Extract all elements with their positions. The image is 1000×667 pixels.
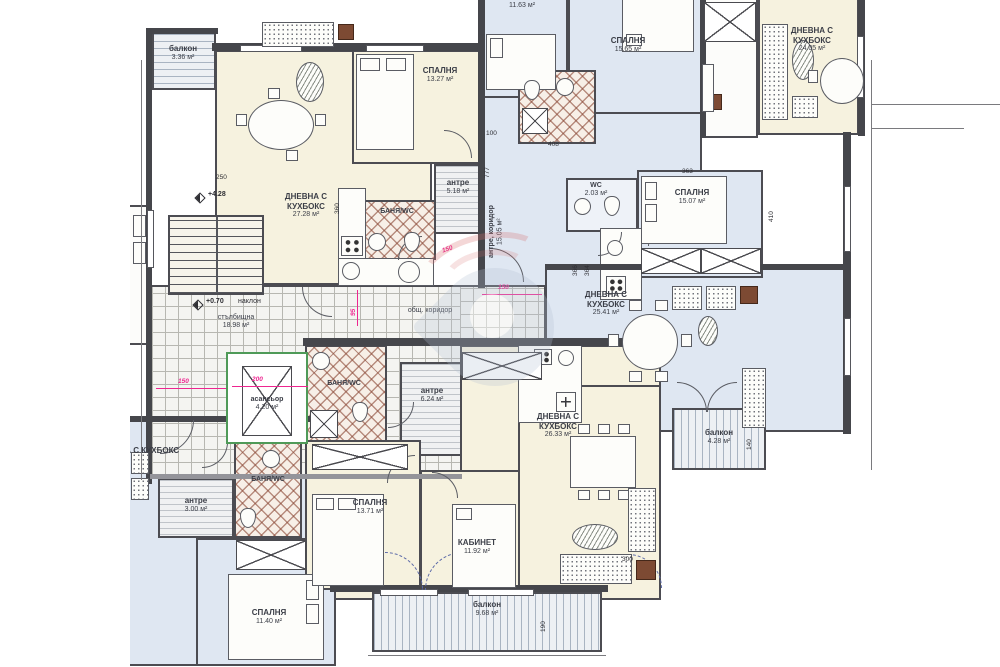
dining-table-round bbox=[622, 314, 678, 370]
room-area: 11.40 м² bbox=[234, 618, 304, 626]
room-area: 25.41 м² bbox=[566, 309, 646, 317]
dim-line bbox=[871, 60, 872, 470]
bed-pillow bbox=[360, 58, 380, 71]
dim-label: 250 bbox=[216, 174, 227, 181]
room-area: 4.28 м² bbox=[686, 438, 752, 446]
dim-label: 100 bbox=[486, 130, 497, 137]
chair bbox=[629, 371, 642, 382]
bed-pillow bbox=[645, 204, 657, 222]
chair bbox=[315, 114, 326, 126]
bed-pillow bbox=[645, 182, 657, 200]
room-name: БАНЯ/WC bbox=[362, 208, 432, 216]
window bbox=[380, 589, 438, 596]
room-name: ДНЕВНА С КУХБОКС bbox=[130, 446, 180, 456]
bed-pillow bbox=[456, 508, 472, 520]
room-label-living-26-33: ДНЕВНА С КУХБОКС 26.33 м² bbox=[518, 412, 598, 440]
wardrobe bbox=[236, 540, 306, 570]
room-name: БАНЯ/WC bbox=[234, 476, 302, 484]
room-name: БАНЯ/WC bbox=[306, 380, 382, 388]
window bbox=[844, 186, 851, 252]
wardrobe bbox=[641, 248, 701, 274]
room-label-living-d: ДНЕВНА С КУХБОКС bbox=[130, 446, 180, 456]
level-value: +4.28 bbox=[208, 191, 226, 198]
dim-line-pink bbox=[482, 294, 542, 295]
dim-line bbox=[872, 128, 964, 129]
washbasin bbox=[574, 198, 591, 215]
room-label-stairwell: стълбищна 18.98 м² bbox=[200, 314, 272, 331]
room-name: антре, коридор bbox=[488, 192, 496, 272]
dim-line bbox=[368, 655, 606, 656]
room-name: СПАЛНЯ bbox=[596, 36, 660, 46]
wall bbox=[150, 28, 218, 34]
stove-fireplace-box bbox=[740, 286, 758, 304]
room-name: антре bbox=[406, 386, 458, 396]
washbasin bbox=[556, 78, 574, 96]
level-value: +0.70 bbox=[206, 298, 224, 305]
washbasin bbox=[312, 352, 330, 370]
room-label-bath-d: БАНЯ/WC bbox=[234, 476, 302, 484]
room-area: 11.92 м² bbox=[442, 548, 512, 556]
window bbox=[844, 318, 851, 376]
stair-divider bbox=[216, 217, 218, 293]
room-area: 3.00 м² bbox=[166, 506, 226, 514]
room-name: балкон bbox=[452, 600, 522, 610]
room-area: 11.63 м² bbox=[490, 2, 554, 10]
dim-label-pink: 95 bbox=[350, 309, 357, 316]
room-label-antre-d: антре 3.00 м² bbox=[166, 496, 226, 514]
room-name: СПАЛНЯ bbox=[660, 188, 724, 198]
kitchen-sink bbox=[398, 261, 420, 283]
slope-note: наклон bbox=[238, 298, 261, 305]
dim-label: 366 bbox=[572, 265, 579, 276]
room-name: антре bbox=[436, 178, 480, 188]
dim-label: 410 bbox=[768, 211, 775, 222]
room-label-antre-e: антре 6.24 м² bbox=[406, 386, 458, 404]
dim-label-pink: 150 bbox=[498, 284, 509, 291]
room-label-elevator: асансьор 4.20 м² bbox=[232, 396, 302, 413]
room-label-living-c: ДНЕВНА С КУХБОКС 24.05 м² bbox=[774, 26, 850, 54]
room-name: ДНЕВНА С КУХБОКС bbox=[774, 26, 850, 45]
dim-label: 190 bbox=[540, 621, 547, 632]
room-area: 4.20 м² bbox=[232, 404, 302, 412]
bed-pillow bbox=[316, 498, 334, 510]
room-name: WC bbox=[578, 182, 614, 190]
plant bbox=[698, 316, 718, 346]
room-area: 9.68 м² bbox=[452, 610, 522, 618]
room-label-bedroom-13-71: СПАЛНЯ 13.71 м² bbox=[338, 498, 402, 516]
room-label-bedroom-11-40: СПАЛНЯ 11.40 м² bbox=[234, 608, 304, 626]
room-label-bedroom-a: СПАЛНЯ 13.27 м² bbox=[408, 66, 472, 84]
dim-label: 300 bbox=[622, 556, 633, 563]
shower-tray bbox=[522, 108, 548, 134]
room-name: ДНЕВНА С КУХБОКС bbox=[518, 412, 598, 431]
room-name: общ. коридор bbox=[394, 307, 466, 315]
dim-line-pink bbox=[357, 290, 358, 326]
sofa bbox=[262, 22, 334, 47]
armchair bbox=[706, 286, 736, 310]
chair bbox=[598, 424, 610, 434]
room-name: антре bbox=[166, 496, 226, 506]
chair bbox=[236, 114, 247, 126]
room-area: 15.07 м² bbox=[660, 198, 724, 206]
sofa bbox=[628, 488, 656, 552]
dim-line bbox=[872, 104, 1000, 105]
stove-fireplace-box bbox=[636, 560, 656, 580]
dim-label: 360 bbox=[334, 203, 341, 214]
armchair bbox=[792, 96, 818, 118]
wall bbox=[843, 132, 851, 434]
room-area: 3.36 м² bbox=[150, 54, 216, 62]
chair bbox=[268, 88, 280, 99]
room-area: 26.33 м² bbox=[518, 431, 598, 439]
room-label-bath-e: БАНЯ/WC bbox=[306, 380, 382, 388]
dim-label: 777 bbox=[484, 167, 491, 178]
kitchen-sink bbox=[558, 350, 574, 366]
dim-label-pink: 150 bbox=[441, 244, 453, 254]
wardrobe bbox=[704, 2, 756, 42]
radiator bbox=[702, 64, 714, 112]
washbasin bbox=[262, 450, 280, 468]
fixture-cut bbox=[133, 242, 146, 264]
room-label-kabinet: КАБИНЕТ 11.92 м² bbox=[442, 538, 512, 556]
room-name: СПАЛНЯ bbox=[234, 608, 304, 618]
window bbox=[366, 45, 424, 52]
room-name: балкон bbox=[150, 44, 216, 54]
dining-table bbox=[248, 100, 314, 150]
room-label-balcony-4-28: балкон 4.28 м² bbox=[686, 428, 752, 446]
room-area: 15.05 м² bbox=[496, 192, 504, 272]
wardrobe bbox=[312, 444, 408, 470]
room-label-wc: WC 2.03 м² bbox=[578, 182, 614, 199]
armchair bbox=[672, 286, 702, 310]
sofa bbox=[742, 368, 766, 428]
kitchen-sink bbox=[342, 262, 360, 280]
room-area: 13.27 м² bbox=[408, 76, 472, 84]
chair bbox=[681, 334, 692, 347]
window bbox=[147, 210, 154, 268]
dining-table-round bbox=[820, 58, 864, 104]
fridge bbox=[556, 392, 576, 412]
chair bbox=[808, 70, 818, 83]
room-label-living-d-clip: ДНЕВНА С КУХБОКС bbox=[130, 446, 182, 486]
bed-pillow bbox=[306, 604, 319, 624]
dim-label: 140 bbox=[746, 439, 753, 450]
dim-label-pink: 150 bbox=[178, 378, 189, 385]
bed-pillow bbox=[490, 38, 503, 58]
room-name: балкон bbox=[686, 428, 752, 438]
room-name: СПАЛНЯ bbox=[338, 498, 402, 508]
wardrobe bbox=[462, 352, 542, 380]
dim-label: 364 bbox=[584, 265, 591, 276]
chair bbox=[286, 150, 298, 161]
window bbox=[468, 589, 534, 596]
antre-5-18-room bbox=[434, 164, 482, 234]
dim-line-pink bbox=[156, 388, 226, 389]
fixture-cut bbox=[133, 215, 146, 237]
cooktop bbox=[341, 236, 363, 256]
room-name: стълбищна bbox=[200, 314, 272, 322]
chair bbox=[598, 490, 610, 500]
room-label-common-corridor: общ. коридор bbox=[394, 307, 466, 315]
room-label-bath-a: БАНЯ/WC bbox=[362, 208, 432, 216]
chair bbox=[655, 371, 668, 382]
bed-pillow bbox=[386, 58, 406, 71]
wardrobe bbox=[701, 248, 761, 274]
level-marker-icon bbox=[194, 192, 205, 203]
room-label-11-63: 11.63 м² bbox=[490, 2, 554, 10]
room-label-living-25-41: ДНЕВНА С КУХБОКС 25.41 м² bbox=[566, 290, 646, 318]
room-label-balcony-tl: балкон 3.36 м² bbox=[150, 44, 216, 62]
room-name: асансьор bbox=[232, 396, 302, 404]
washbasin bbox=[368, 233, 386, 251]
wall bbox=[478, 0, 485, 288]
rug bbox=[572, 524, 618, 550]
room-name: КАБИНЕТ bbox=[442, 538, 512, 548]
chair bbox=[655, 300, 668, 311]
room-area: 6.24 м² bbox=[406, 396, 458, 404]
shower-tray bbox=[310, 410, 338, 438]
room-area: 24.05 м² bbox=[774, 45, 850, 53]
dim-label: 363 bbox=[682, 168, 693, 175]
room-area: 13.71 м² bbox=[338, 508, 402, 516]
room-area: 18.98 м² bbox=[200, 322, 272, 330]
staircase bbox=[168, 215, 264, 295]
chair bbox=[578, 490, 590, 500]
chair bbox=[618, 424, 630, 434]
room-area: 5.18 м² bbox=[436, 188, 480, 196]
plant bbox=[296, 62, 324, 102]
chair bbox=[608, 334, 619, 347]
kitchen-sink bbox=[607, 240, 623, 256]
room-label-balcony-9-68: балкон 9.68 м² bbox=[452, 600, 522, 618]
room-label-antre-a: антре 5.18 м² bbox=[436, 178, 480, 196]
room-label-antre-koridor: антре, коридор 15.05 м² bbox=[488, 192, 505, 272]
stove-fireplace-box bbox=[338, 24, 354, 40]
floor-plan-canvas: балкон 3.36 м² СПАЛНЯ 13.27 м² ДНЕВНА С … bbox=[0, 0, 1000, 667]
dim-line bbox=[141, 60, 142, 480]
room-name: ДНЕВНА С КУХБОКС bbox=[566, 290, 646, 309]
dim-label: 408 bbox=[548, 141, 559, 148]
room-name: СПАЛНЯ bbox=[408, 66, 472, 76]
dim-line-pink bbox=[232, 386, 308, 387]
room-label-bedroom-15-07: СПАЛНЯ 15.07 м² bbox=[660, 188, 724, 206]
dim-label-pink: 200 bbox=[252, 376, 263, 383]
room-area: 2.03 м² bbox=[578, 190, 614, 198]
wall-grey bbox=[150, 474, 462, 479]
room-label-bedroom-15-65: СПАЛНЯ 15.65 м² bbox=[596, 36, 660, 54]
dining-table bbox=[570, 436, 636, 488]
room-area: 15.65 м² bbox=[596, 46, 660, 54]
